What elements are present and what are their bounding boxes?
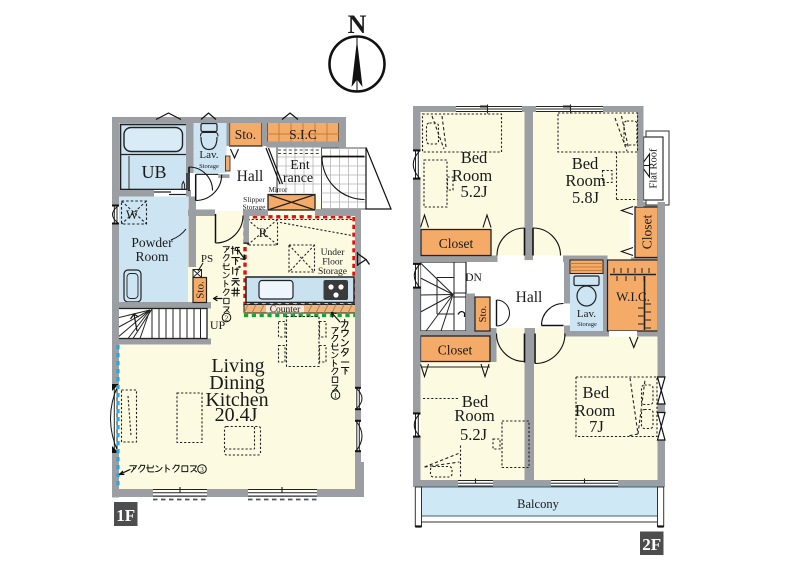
svg-text:2F: 2F: [642, 535, 661, 554]
svg-text:Closet: Closet: [439, 236, 474, 251]
svg-text:Storage: Storage: [318, 267, 347, 277]
svg-text:Room: Room: [454, 406, 495, 425]
svg-text:Storage: Storage: [577, 321, 597, 328]
svg-text:Floor: Floor: [322, 258, 343, 268]
svg-text:Lav.: Lav.: [199, 149, 218, 161]
svg-text:5.2J: 5.2J: [460, 425, 488, 444]
svg-text:7J: 7J: [589, 417, 604, 436]
svg-text:W.I.C.: W.I.C.: [616, 289, 650, 304]
svg-text:Hall: Hall: [516, 289, 543, 306]
svg-text:DN: DN: [465, 272, 482, 284]
svg-text:Counter: Counter: [270, 305, 301, 315]
svg-text:Bed: Bed: [461, 148, 488, 167]
svg-text:5.2J: 5.2J: [460, 182, 488, 201]
svg-text:Hall: Hall: [237, 168, 264, 185]
svg-text:1: 1: [334, 392, 338, 400]
svg-text:Mirror: Mirror: [269, 186, 288, 194]
svg-text:Flat Roof: Flat Roof: [649, 148, 660, 188]
svg-text:1F: 1F: [116, 506, 135, 525]
svg-text:Bed: Bed: [583, 383, 610, 402]
svg-text:20.4J: 20.4J: [215, 404, 258, 426]
svg-text:Sto.: Sto.: [235, 127, 256, 142]
svg-text:R: R: [259, 225, 268, 240]
svg-text:Balcony: Balcony: [517, 497, 559, 511]
svg-text:Storage: Storage: [199, 163, 219, 170]
svg-text:Powder: Powder: [131, 235, 173, 250]
svg-text:Sto.: Sto.: [195, 281, 207, 299]
svg-text:rance: rance: [283, 171, 313, 186]
svg-text:Closet: Closet: [438, 343, 473, 358]
svg-text:S.I.C: S.I.C: [289, 127, 317, 142]
svg-text:Under: Under: [321, 248, 346, 258]
svg-text:Closet: Closet: [640, 215, 655, 250]
svg-text:UB: UB: [141, 162, 166, 182]
svg-text:Room: Room: [135, 249, 169, 264]
svg-text:3: 3: [200, 466, 204, 474]
svg-text:W: W: [126, 207, 139, 222]
svg-text:Sto.: Sto.: [478, 306, 489, 323]
svg-text:2: 2: [225, 315, 229, 323]
svg-text:N: N: [348, 10, 367, 39]
svg-text:Lav.: Lav.: [577, 308, 596, 320]
svg-text:5.8J: 5.8J: [572, 188, 600, 207]
